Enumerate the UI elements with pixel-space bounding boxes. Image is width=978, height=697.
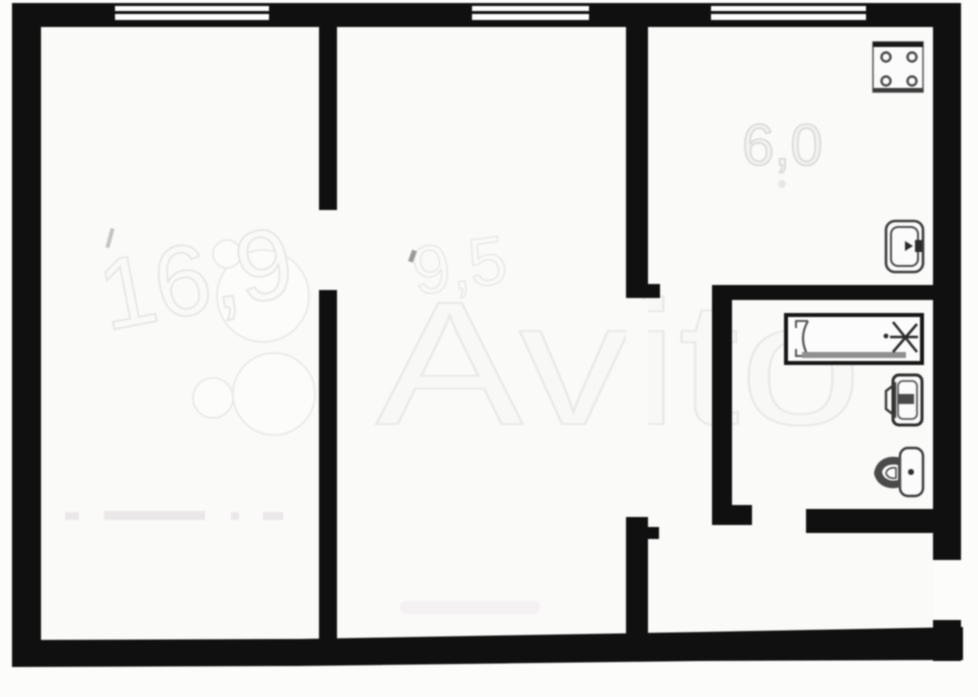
- svg-text:6,0: 6,0: [742, 113, 823, 178]
- svg-text:9,5: 9,5: [407, 221, 511, 309]
